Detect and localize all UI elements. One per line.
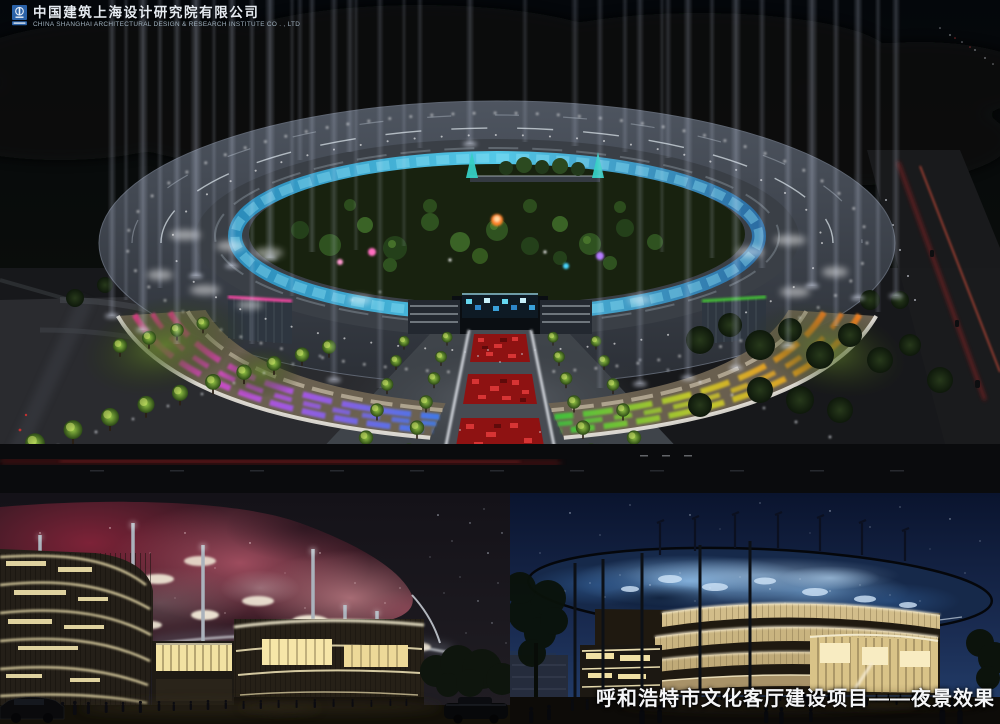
company-name-en: CHINA SHANGHAI ARCHITECTURAL DESIGN & RE…: [33, 20, 300, 29]
project-caption: 呼和浩特市文化客厅建设项目——夜景效果: [596, 682, 995, 711]
glass-sky-bridge: [462, 294, 538, 318]
aerial-night-render: [0, 0, 1000, 493]
entrance-gate-and-bridge: [408, 294, 592, 334]
company-name-zh: 中国建筑上海设计研究院有限公司: [33, 5, 300, 20]
presentation-board: 中国建筑上海设计研究院有限公司 CHINA SHANGHAI ARCHITECT…: [0, 0, 1000, 724]
company-logo: 中国建筑上海设计研究院有限公司 CHINA SHANGHAI ARCHITECT…: [12, 5, 300, 29]
right-pavilion-building: [234, 619, 424, 707]
pink-nebula-canopy-render: [0, 493, 510, 724]
cscec-emblem-icon: [12, 5, 27, 26]
front-road: [0, 444, 1000, 493]
